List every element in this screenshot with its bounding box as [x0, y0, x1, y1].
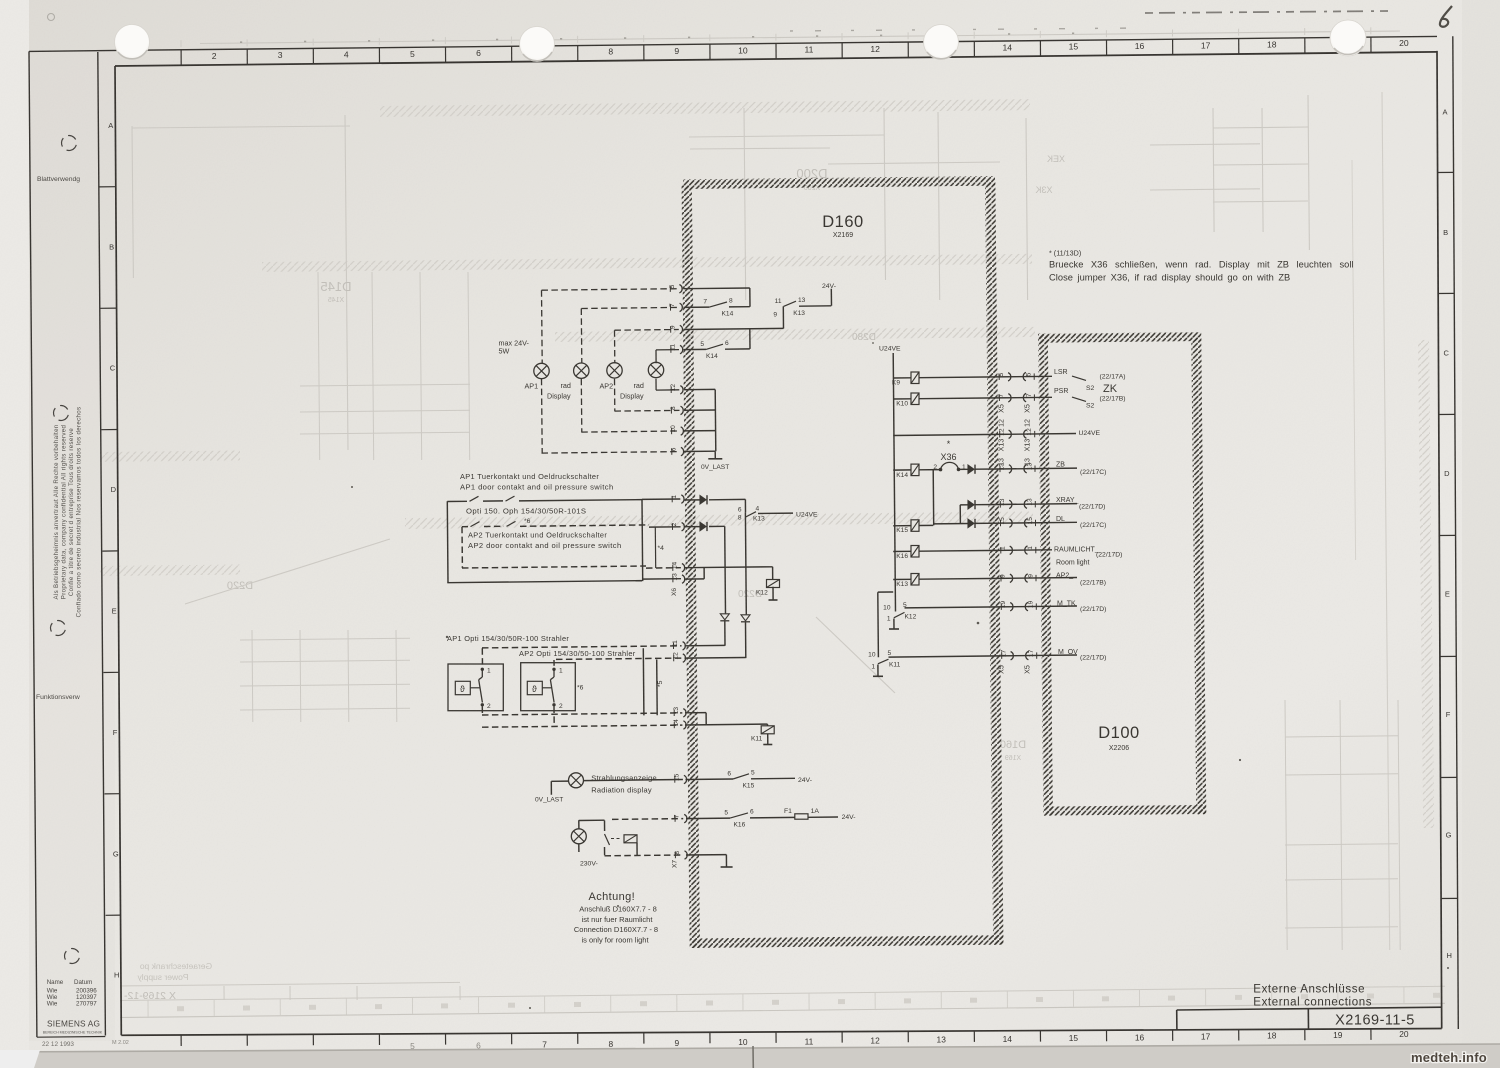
- svg-text:medteh.info: medteh.info: [1411, 1050, 1487, 1065]
